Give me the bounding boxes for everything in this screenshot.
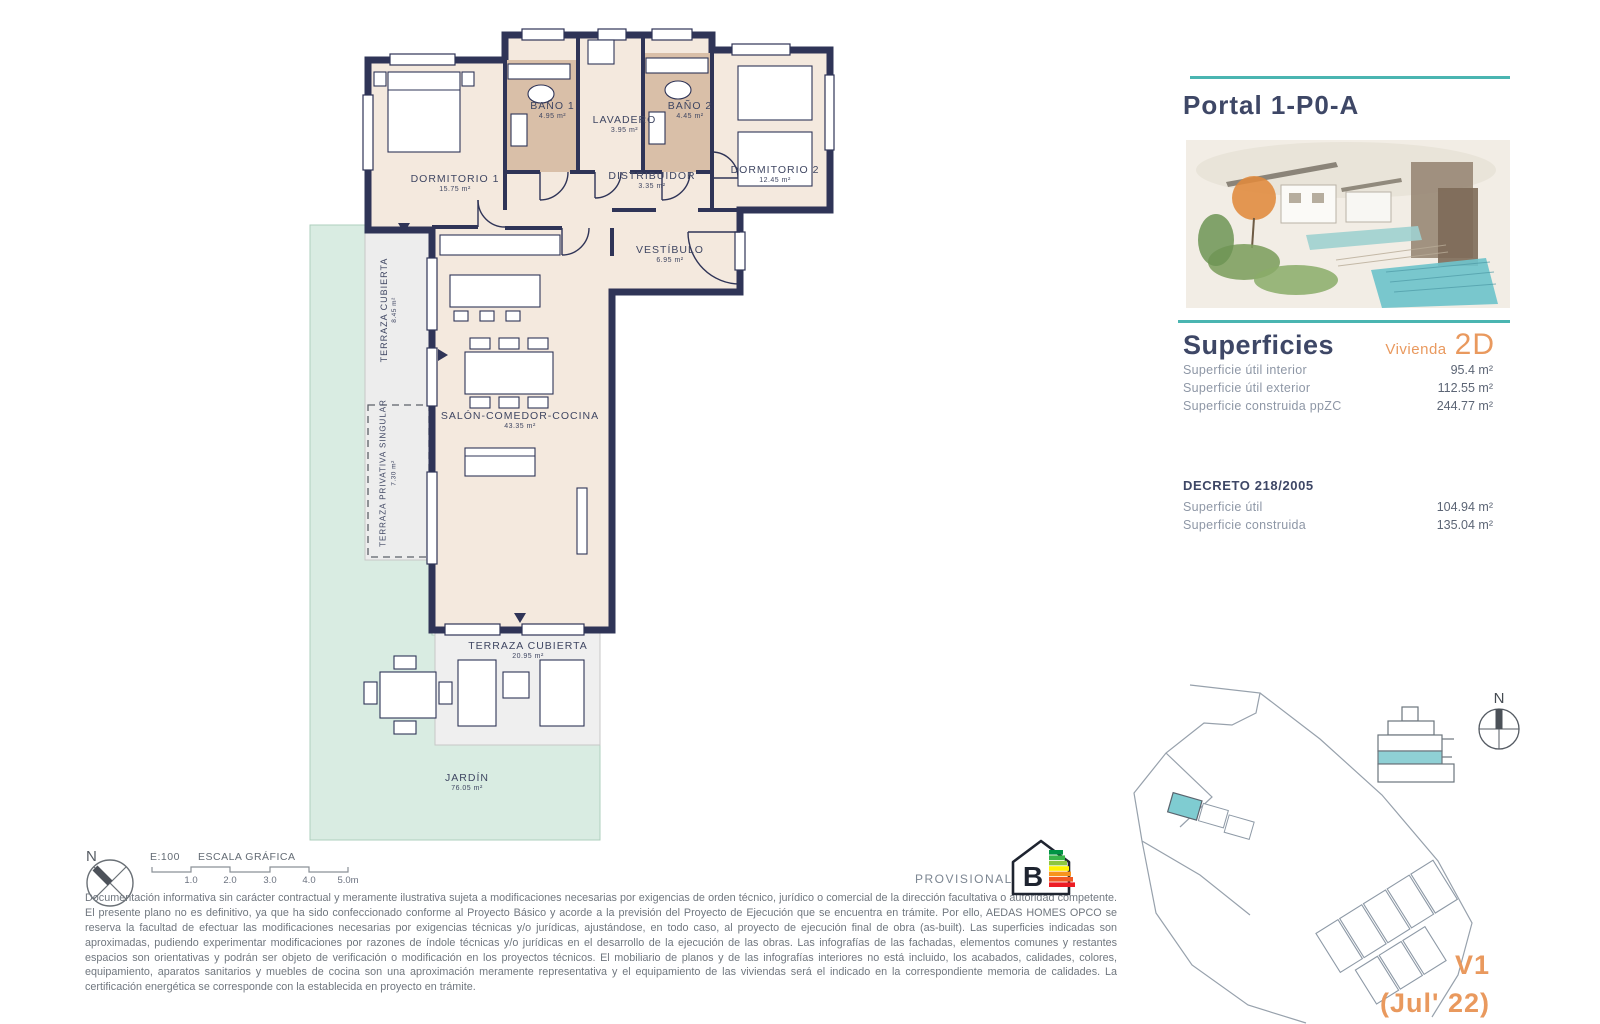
teal-divider-superficies [1178,320,1510,323]
vivienda-label: Vivienda [1385,341,1446,358]
provisional-label: PROVISIONAL [915,872,1013,886]
site-north-label: N [1494,690,1505,707]
teal-divider-top [1190,76,1510,79]
scale-segments [152,867,348,872]
vivienda-group: Vivienda2D [1385,328,1495,362]
decreto-row: Superficie útil 104.94 m² [1183,500,1493,514]
energy-bars [1049,850,1075,887]
scale-tick: 1.0 [184,875,197,886]
scale-tick: 3.0 [263,875,276,886]
energy-rating-icon: B [1005,834,1077,900]
building-elevation-key [1378,707,1454,782]
site-north-compass-icon: N [1479,690,1519,749]
row-value: 244.77 m² [1437,399,1493,413]
terrace-private-area [368,405,429,557]
scale-tick: 2.0 [223,875,236,886]
vivienda-code: 2D [1455,328,1495,361]
highlighted-unit [1168,793,1202,820]
compass-north-label: N [86,848,97,865]
scale-tick: 4.0 [302,875,315,886]
superficies-row: Superficie construida ppZC 244.77 m² [1183,399,1493,413]
row-label: Superficie útil exterior [1183,381,1310,395]
superficies-row: Superficie útil exterior 112.55 m² [1183,381,1493,395]
row-label: Superficie construida ppZC [1183,399,1342,413]
row-label: Superficie útil [1183,500,1263,514]
scale-bar: E:100 ESCALA GRÁFICA 1.0 2.0 3.0 4.0 5.0… [148,848,368,888]
superficies-header: Superficies Vivienda2D [1183,328,1495,362]
scale-label: ESCALA GRÁFICA [198,850,295,863]
scale-tick: 5.0m [337,875,358,886]
row-value: 135.04 m² [1437,518,1493,532]
floor-plan-drawing [300,20,840,850]
version-label: V1 [1400,950,1490,981]
unit-row [1167,793,1256,840]
row-label: Superficie útil interior [1183,363,1307,377]
row-value: 95.4 m² [1451,363,1493,377]
building-rendering [1186,140,1510,308]
superficies-heading: Superficies [1183,330,1334,361]
floor-plan-sheet: DORMITORIO 1 15.75 m² BAÑO 1 4.95 m² LAV… [0,0,1600,1024]
decreto-row: Superficie construida 135.04 m² [1183,518,1493,532]
portal-title: Portal 1-P0-A [1183,90,1513,121]
row-label: Superficie construida [1183,518,1306,532]
superficies-row: Superficie útil interior 95.4 m² [1183,363,1493,377]
version-date-label: (Jul' 22) [1360,988,1490,1019]
scale-ratio: E:100 [150,851,180,863]
decreto-heading: DECRETO 218/2005 [1183,478,1314,493]
energy-rating-letter: B [1023,861,1043,892]
row-value: 112.55 m² [1438,381,1493,395]
row-value: 104.94 m² [1437,500,1493,514]
legal-disclaimer: Documentación informativa sin carácter c… [85,891,1117,995]
